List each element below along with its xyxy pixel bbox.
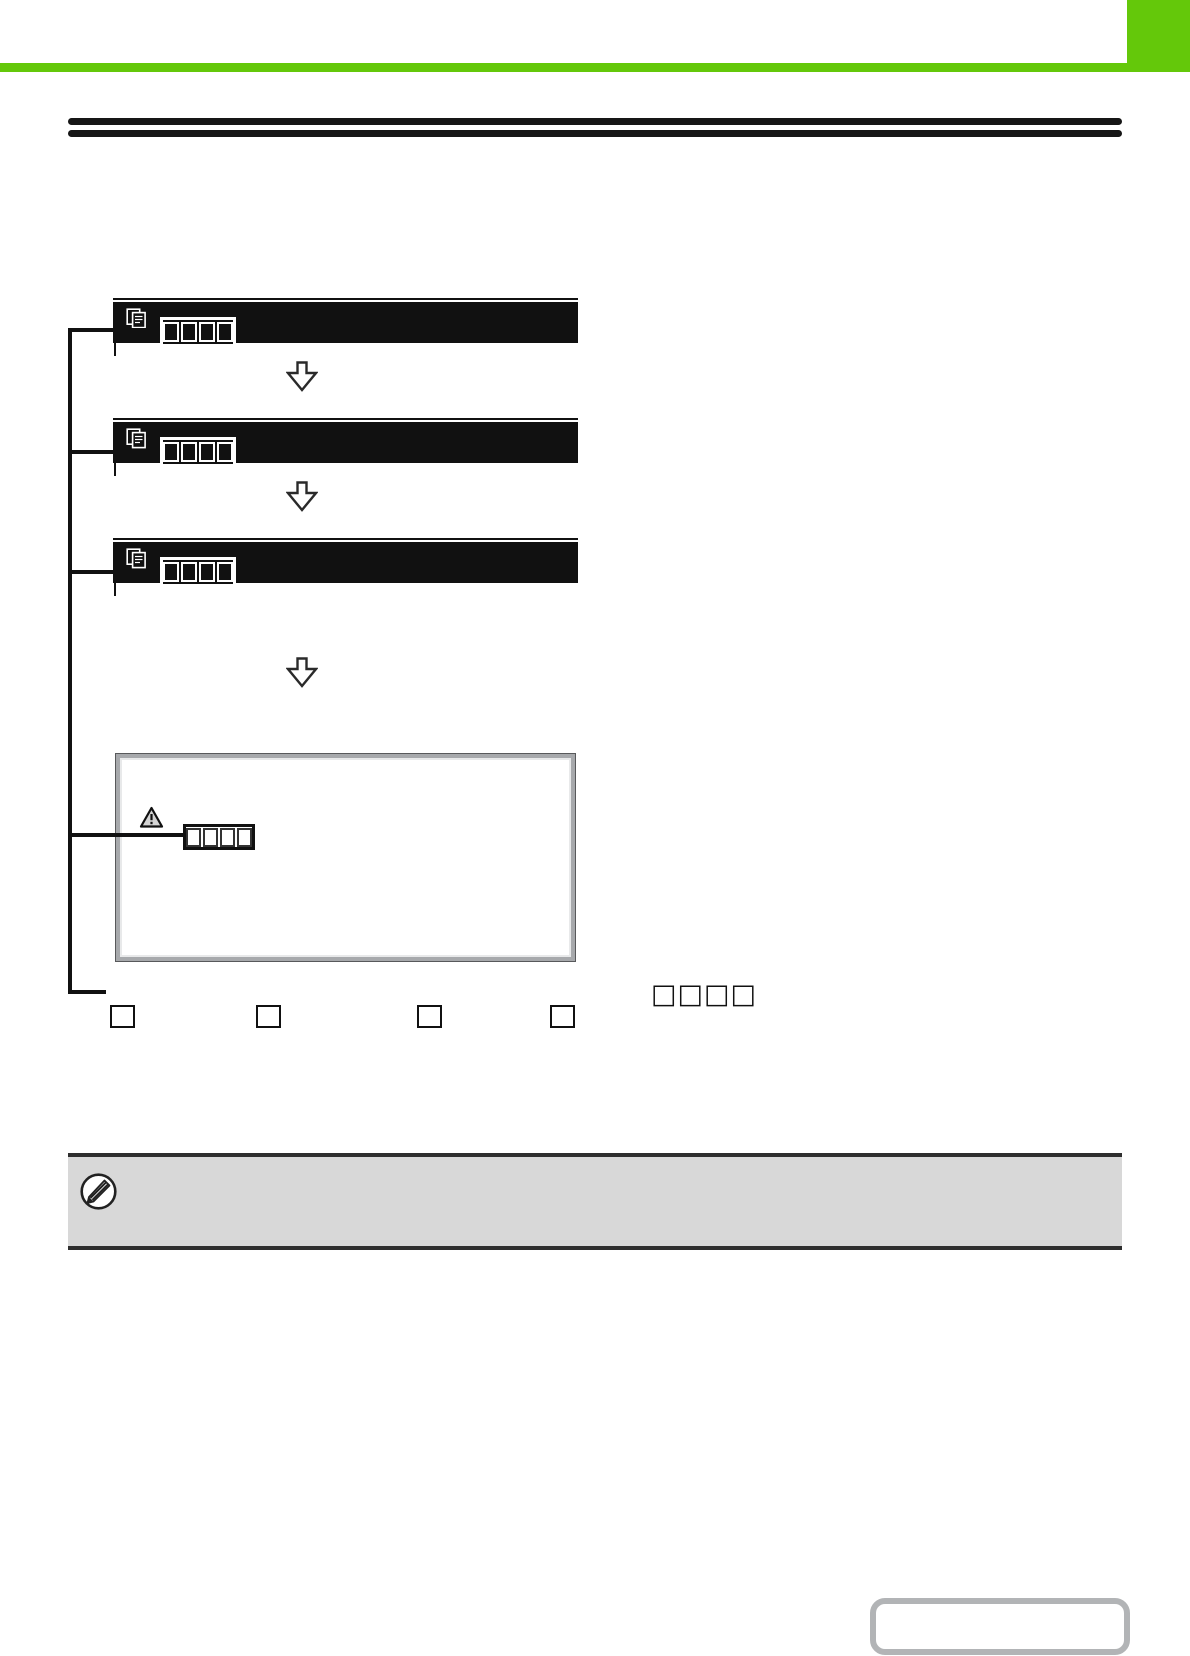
screen-top-line bbox=[113, 420, 578, 422]
digit-slot bbox=[163, 442, 179, 462]
note-bar bbox=[68, 1153, 1122, 1250]
callout-connector-branch-1 bbox=[68, 328, 161, 332]
digit-slot bbox=[217, 562, 233, 582]
screen-left-tick bbox=[114, 463, 116, 476]
copies-icon bbox=[126, 308, 148, 329]
copies-count-display bbox=[183, 824, 255, 850]
copies-icon bbox=[126, 548, 148, 569]
digit-slot bbox=[181, 562, 197, 582]
callout-square-2 bbox=[256, 1005, 281, 1028]
digit-slot bbox=[217, 442, 233, 462]
copies-count-display bbox=[160, 317, 236, 347]
digit-slot bbox=[186, 828, 201, 847]
callout-connector-branch-2 bbox=[68, 450, 161, 454]
panel-screen-2 bbox=[113, 418, 578, 463]
digit-slot bbox=[163, 322, 179, 342]
digit-slot bbox=[199, 442, 215, 462]
screen-left-tick bbox=[114, 343, 116, 356]
down-arrow-icon bbox=[286, 657, 318, 688]
digit-slot bbox=[163, 562, 179, 582]
callout-connector-vertical bbox=[68, 328, 72, 994]
callout-connector-branch-4 bbox=[68, 833, 185, 837]
digit-slot bbox=[181, 442, 197, 462]
callout-square-4 bbox=[550, 1005, 575, 1028]
callout-connector-elbow bbox=[68, 990, 106, 994]
warning-triangle-icon bbox=[139, 806, 164, 829]
callout-square-1 bbox=[110, 1005, 135, 1028]
screen-top-line bbox=[113, 540, 578, 542]
digit-slot bbox=[220, 828, 235, 847]
down-arrow-icon bbox=[286, 361, 318, 392]
callout-square-3 bbox=[417, 1005, 442, 1028]
pencil-note-icon bbox=[79, 1172, 118, 1211]
manual-page: □□□□ bbox=[0, 0, 1190, 1656]
down-arrow-icon bbox=[286, 481, 318, 512]
digit-slot bbox=[181, 322, 197, 342]
digit-slot bbox=[237, 828, 252, 847]
message-box-border bbox=[120, 758, 571, 957]
copies-count-display bbox=[160, 437, 236, 467]
panel-screen-1 bbox=[113, 298, 578, 343]
heading-rule-bottom bbox=[68, 130, 1122, 137]
header-green-bar bbox=[0, 63, 1190, 72]
message-box-body bbox=[122, 760, 569, 955]
screen-left-tick bbox=[114, 583, 116, 596]
digit-slot bbox=[199, 562, 215, 582]
digit-slot bbox=[217, 322, 233, 342]
copies-count-display bbox=[160, 557, 236, 587]
panel-screen-3 bbox=[113, 538, 578, 583]
header-green-tab bbox=[1127, 0, 1190, 72]
contents-nav-box[interactable] bbox=[870, 1598, 1130, 1655]
callout-connector-branch-3 bbox=[68, 570, 161, 574]
digit-slot bbox=[203, 828, 218, 847]
copies-icon bbox=[126, 428, 148, 449]
screen-top-line bbox=[113, 300, 578, 302]
heading-rule-top bbox=[68, 118, 1122, 125]
placeholder-glyphs: □□□□ bbox=[651, 981, 757, 1008]
message-box bbox=[115, 753, 576, 962]
digit-slot bbox=[199, 322, 215, 342]
